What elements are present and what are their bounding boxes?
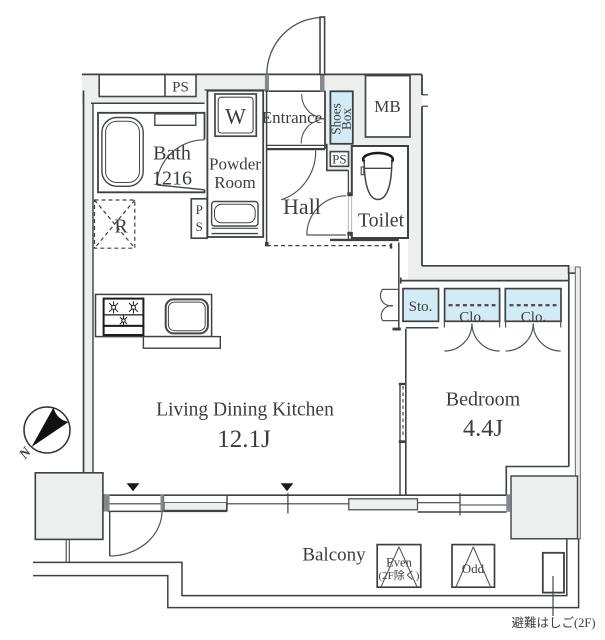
- svg-text:Hall: Hall: [283, 194, 321, 219]
- svg-text:Clo.: Clo.: [521, 310, 546, 326]
- svg-text:Odd: Odd: [462, 561, 485, 576]
- svg-text:4.4J: 4.4J: [463, 415, 504, 442]
- svg-text:Even: Even: [386, 556, 412, 570]
- svg-text:Entrance: Entrance: [262, 108, 322, 127]
- svg-text:MB: MB: [374, 97, 400, 116]
- svg-text:(2F除く): (2F除く): [379, 568, 420, 582]
- svg-text:Bath: Bath: [153, 143, 191, 165]
- svg-text:Room: Room: [214, 173, 256, 192]
- svg-text:Powder: Powder: [209, 155, 261, 174]
- svg-text:PS: PS: [172, 80, 189, 96]
- svg-text:W: W: [225, 104, 246, 129]
- svg-text:Living Dining Kitchen: Living Dining Kitchen: [156, 400, 334, 421]
- svg-text:Toilet: Toilet: [358, 210, 405, 232]
- svg-text:1216: 1216: [152, 168, 192, 190]
- svg-text:Clo.: Clo.: [459, 310, 484, 326]
- svg-text:PS: PS: [332, 152, 346, 167]
- svg-text:Bedroom: Bedroom: [446, 389, 521, 411]
- svg-text:避難はしご(2F): 避難はしご(2F): [511, 615, 595, 630]
- svg-text:Balcony: Balcony: [302, 545, 366, 566]
- svg-text:R: R: [114, 216, 128, 238]
- svg-text:P: P: [196, 202, 203, 217]
- svg-text:Box: Box: [339, 108, 354, 130]
- svg-text:12.1J: 12.1J: [217, 426, 271, 453]
- svg-text:Sto.: Sto.: [409, 299, 433, 315]
- svg-text:S: S: [196, 219, 203, 234]
